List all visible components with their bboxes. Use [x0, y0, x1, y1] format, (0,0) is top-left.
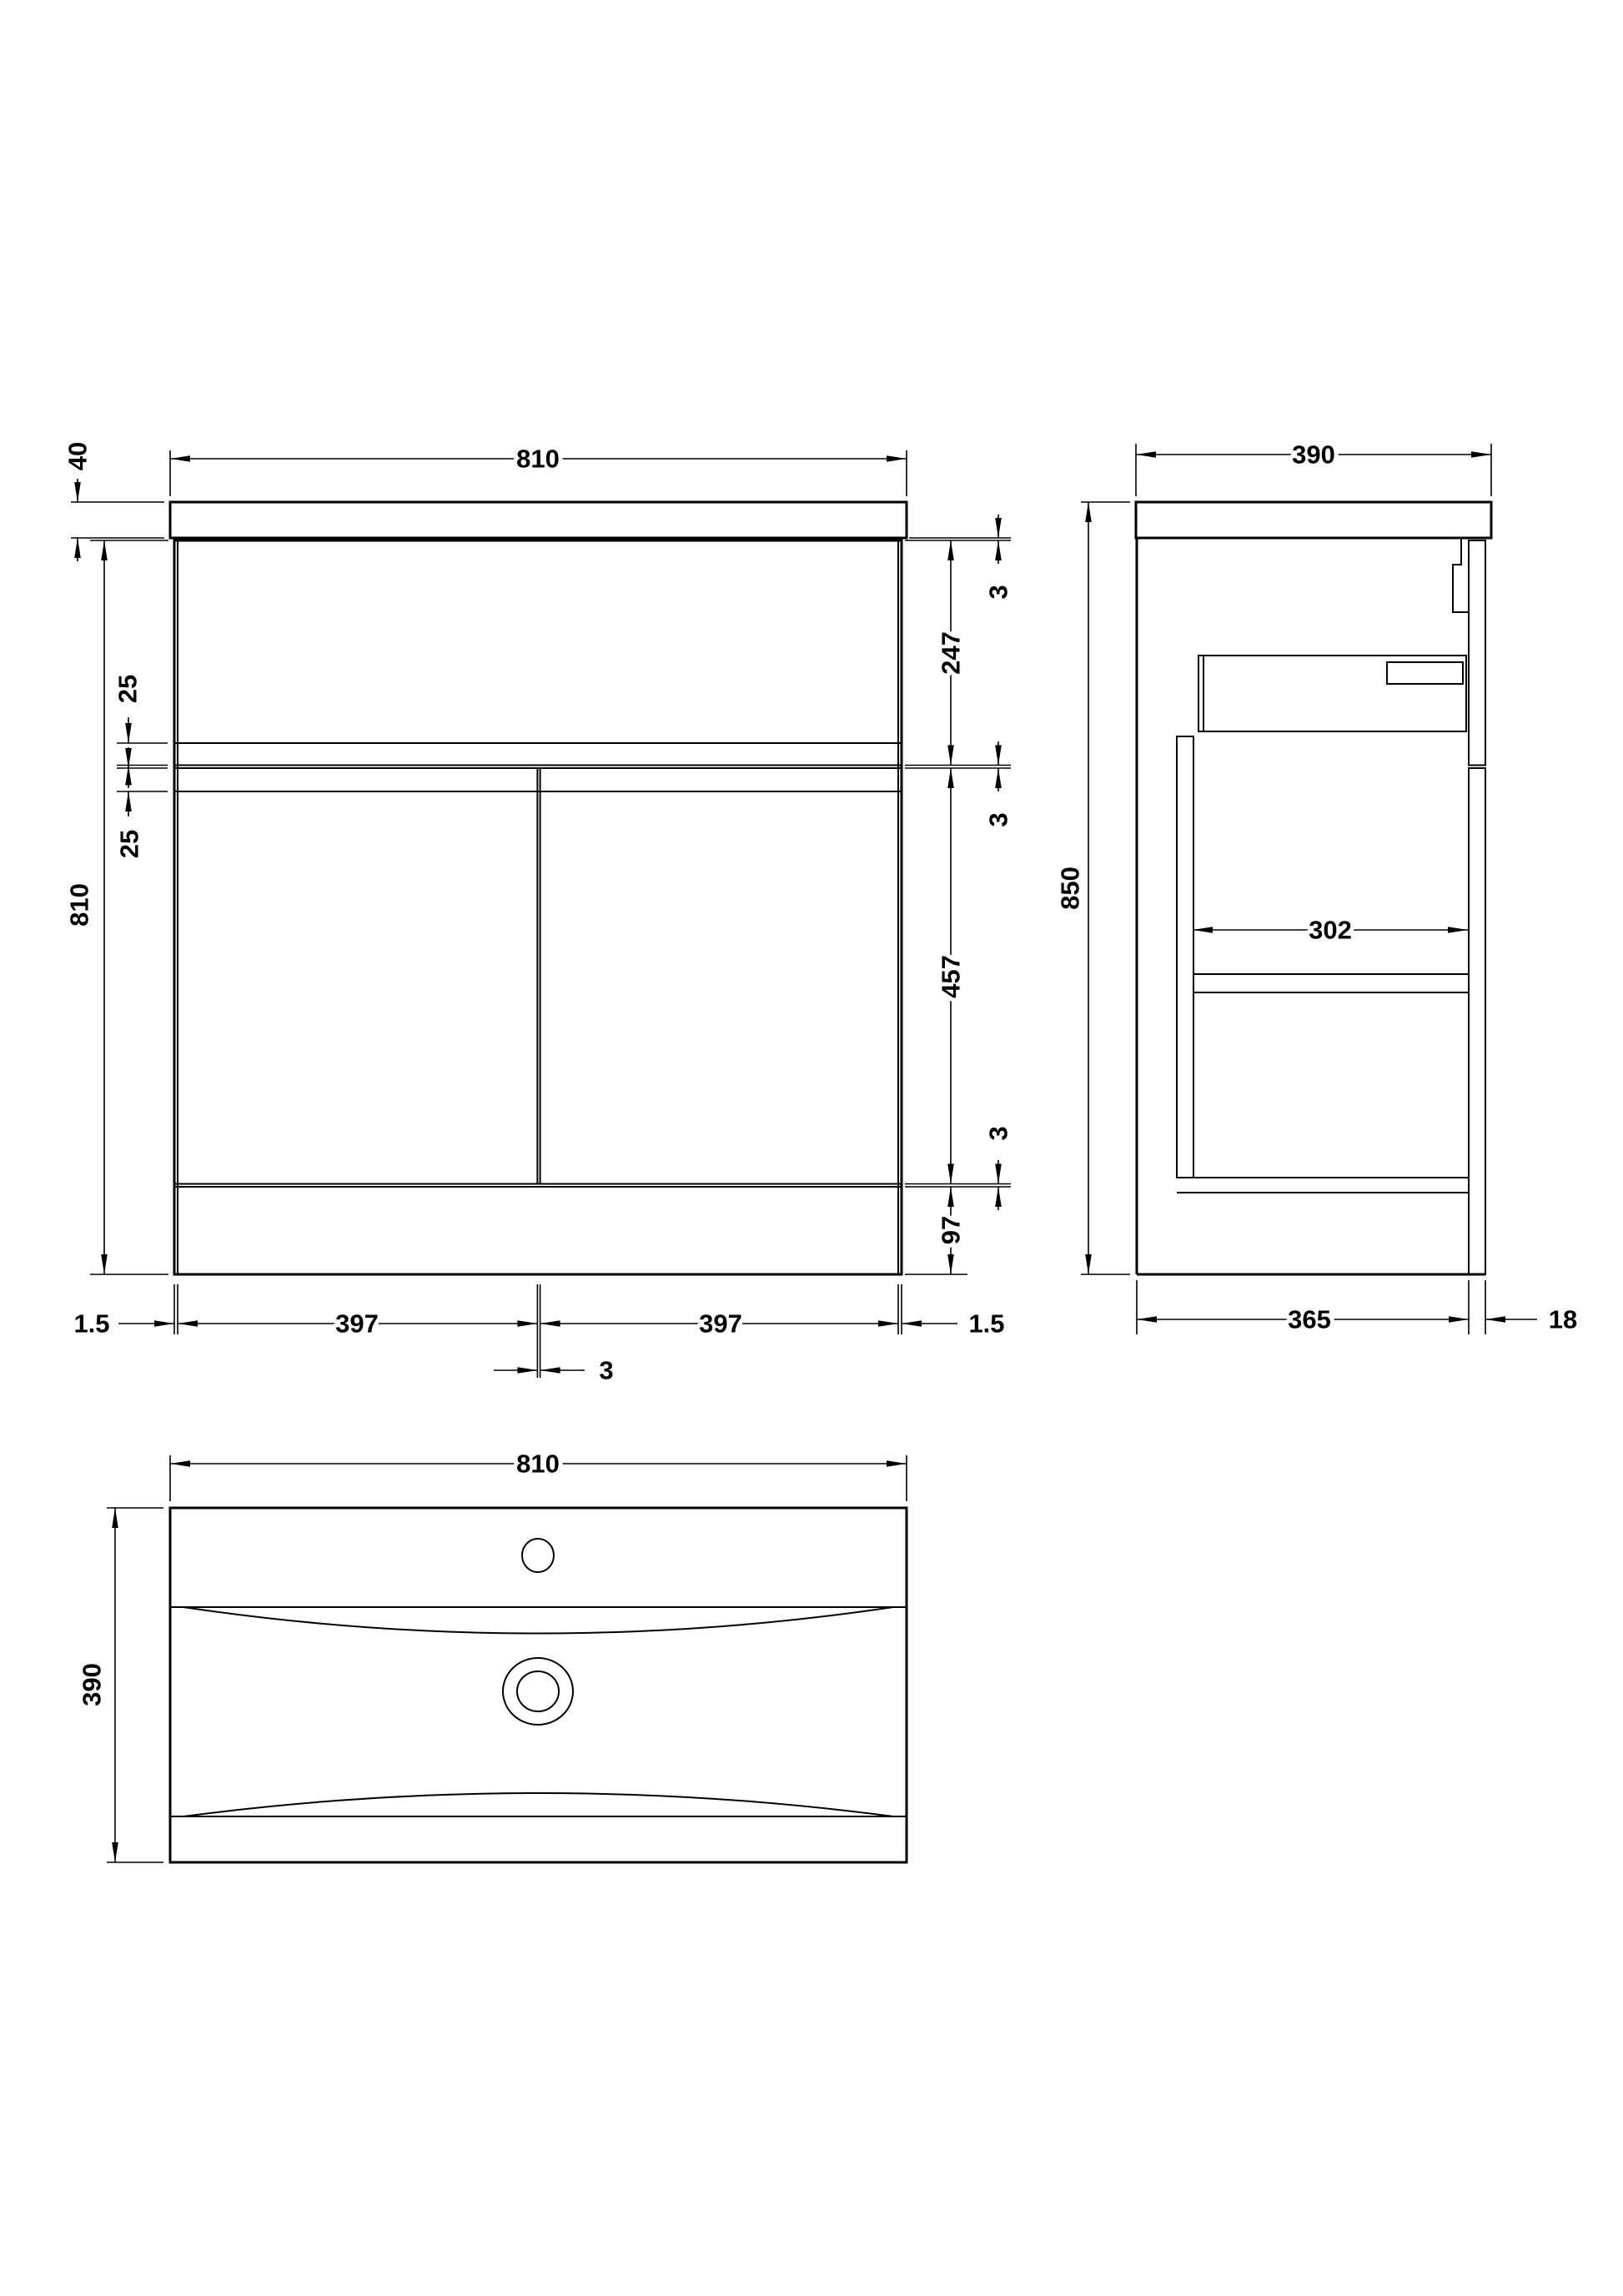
front-door-split-lines [537, 768, 540, 1184]
dim-label-left-door-width: 397 [335, 1309, 379, 1339]
side-drawer-runner [1387, 662, 1463, 684]
plan-waste-hole-outer [503, 1658, 573, 1725]
plan-bowl-front-curve [183, 1607, 893, 1634]
dim-label-cabinet-height: 810 [65, 883, 94, 927]
dim-label-upper-rail-inset: 25 [113, 675, 143, 703]
dim-label-overall-height: 850 [1056, 867, 1085, 910]
side-door-section [1469, 768, 1485, 1274]
dim-label-drawer-height: 247 [937, 631, 966, 675]
side-drawer-box [1198, 656, 1466, 731]
dim-label-mid-gap: 3 [984, 812, 1013, 826]
side-view-outline [1136, 502, 1491, 1274]
plan-waste-hole-inner [517, 1671, 559, 1711]
dim-label-internal-depth: 302 [1309, 916, 1352, 945]
dim-ext-cabinet-height [90, 540, 168, 1274]
front-view: 810 40 810 25 25 247 457 [63, 442, 1013, 1385]
dim-label-front-width: 810 [516, 445, 560, 474]
dim-ext-worktop-thickness [71, 502, 164, 538]
side-basin-step [1453, 538, 1469, 612]
dim-label-top-gap: 3 [984, 585, 1013, 599]
side-rear-panel [1177, 736, 1193, 1178]
dim-label-left-edge-gap: 1.5 [73, 1309, 109, 1339]
front-worktop [170, 502, 907, 538]
dim-label-plan-depth: 390 [78, 1663, 107, 1706]
side-view: 390 850 302 365 18 [1056, 440, 1578, 1335]
side-shelf-lines [1193, 974, 1469, 992]
plan-view-outline [170, 1508, 907, 1862]
dim-label-worktop-thickness: 40 [63, 442, 93, 470]
plan-bowl-rear-curve [183, 1793, 893, 1816]
dim-label-door-thickness: 18 [1549, 1305, 1577, 1334]
dim-label-right-door-width: 397 [699, 1309, 742, 1339]
dim-label-side-depth: 390 [1292, 440, 1335, 470]
dim-label-door-height: 457 [937, 955, 966, 998]
front-door-bottom-plinth-lines [174, 1184, 902, 1188]
dim-label-right-edge-gap: 1.5 [968, 1309, 1004, 1339]
dim-label-plan-width: 810 [516, 1449, 560, 1479]
dim-label-lower-rail-inset: 25 [115, 830, 144, 858]
dim-ext-door-gap [537, 1284, 540, 1378]
drawing-sheet: 810 40 810 25 25 247 457 [0, 0, 1623, 2296]
side-drawer-front-section [1469, 540, 1485, 766]
plan-basin-outline [170, 1508, 907, 1862]
front-drawer-door-gap-lines [174, 766, 902, 769]
dim-label-door-gap: 3 [599, 1356, 613, 1385]
dim-label-bottom-gap: 3 [984, 1126, 1013, 1140]
side-bottom-shelf-lines [1177, 1178, 1469, 1193]
plan-view-dimensions: 810 390 [78, 1449, 907, 1863]
plan-tap-hole [522, 1539, 554, 1572]
dim-label-plinth-height: 97 [937, 1216, 966, 1244]
side-view-dimensions: 390 850 302 365 18 [1056, 440, 1578, 1335]
technical-drawing-canvas: 810 40 810 25 25 247 457 [0, 0, 1623, 2296]
front-view-outline [170, 502, 907, 1274]
plan-view: 810 390 [78, 1449, 907, 1863]
dim-ext-rail-insets [117, 743, 168, 791]
side-worktop [1136, 502, 1491, 538]
dim-label-carcass-depth: 365 [1288, 1305, 1331, 1334]
